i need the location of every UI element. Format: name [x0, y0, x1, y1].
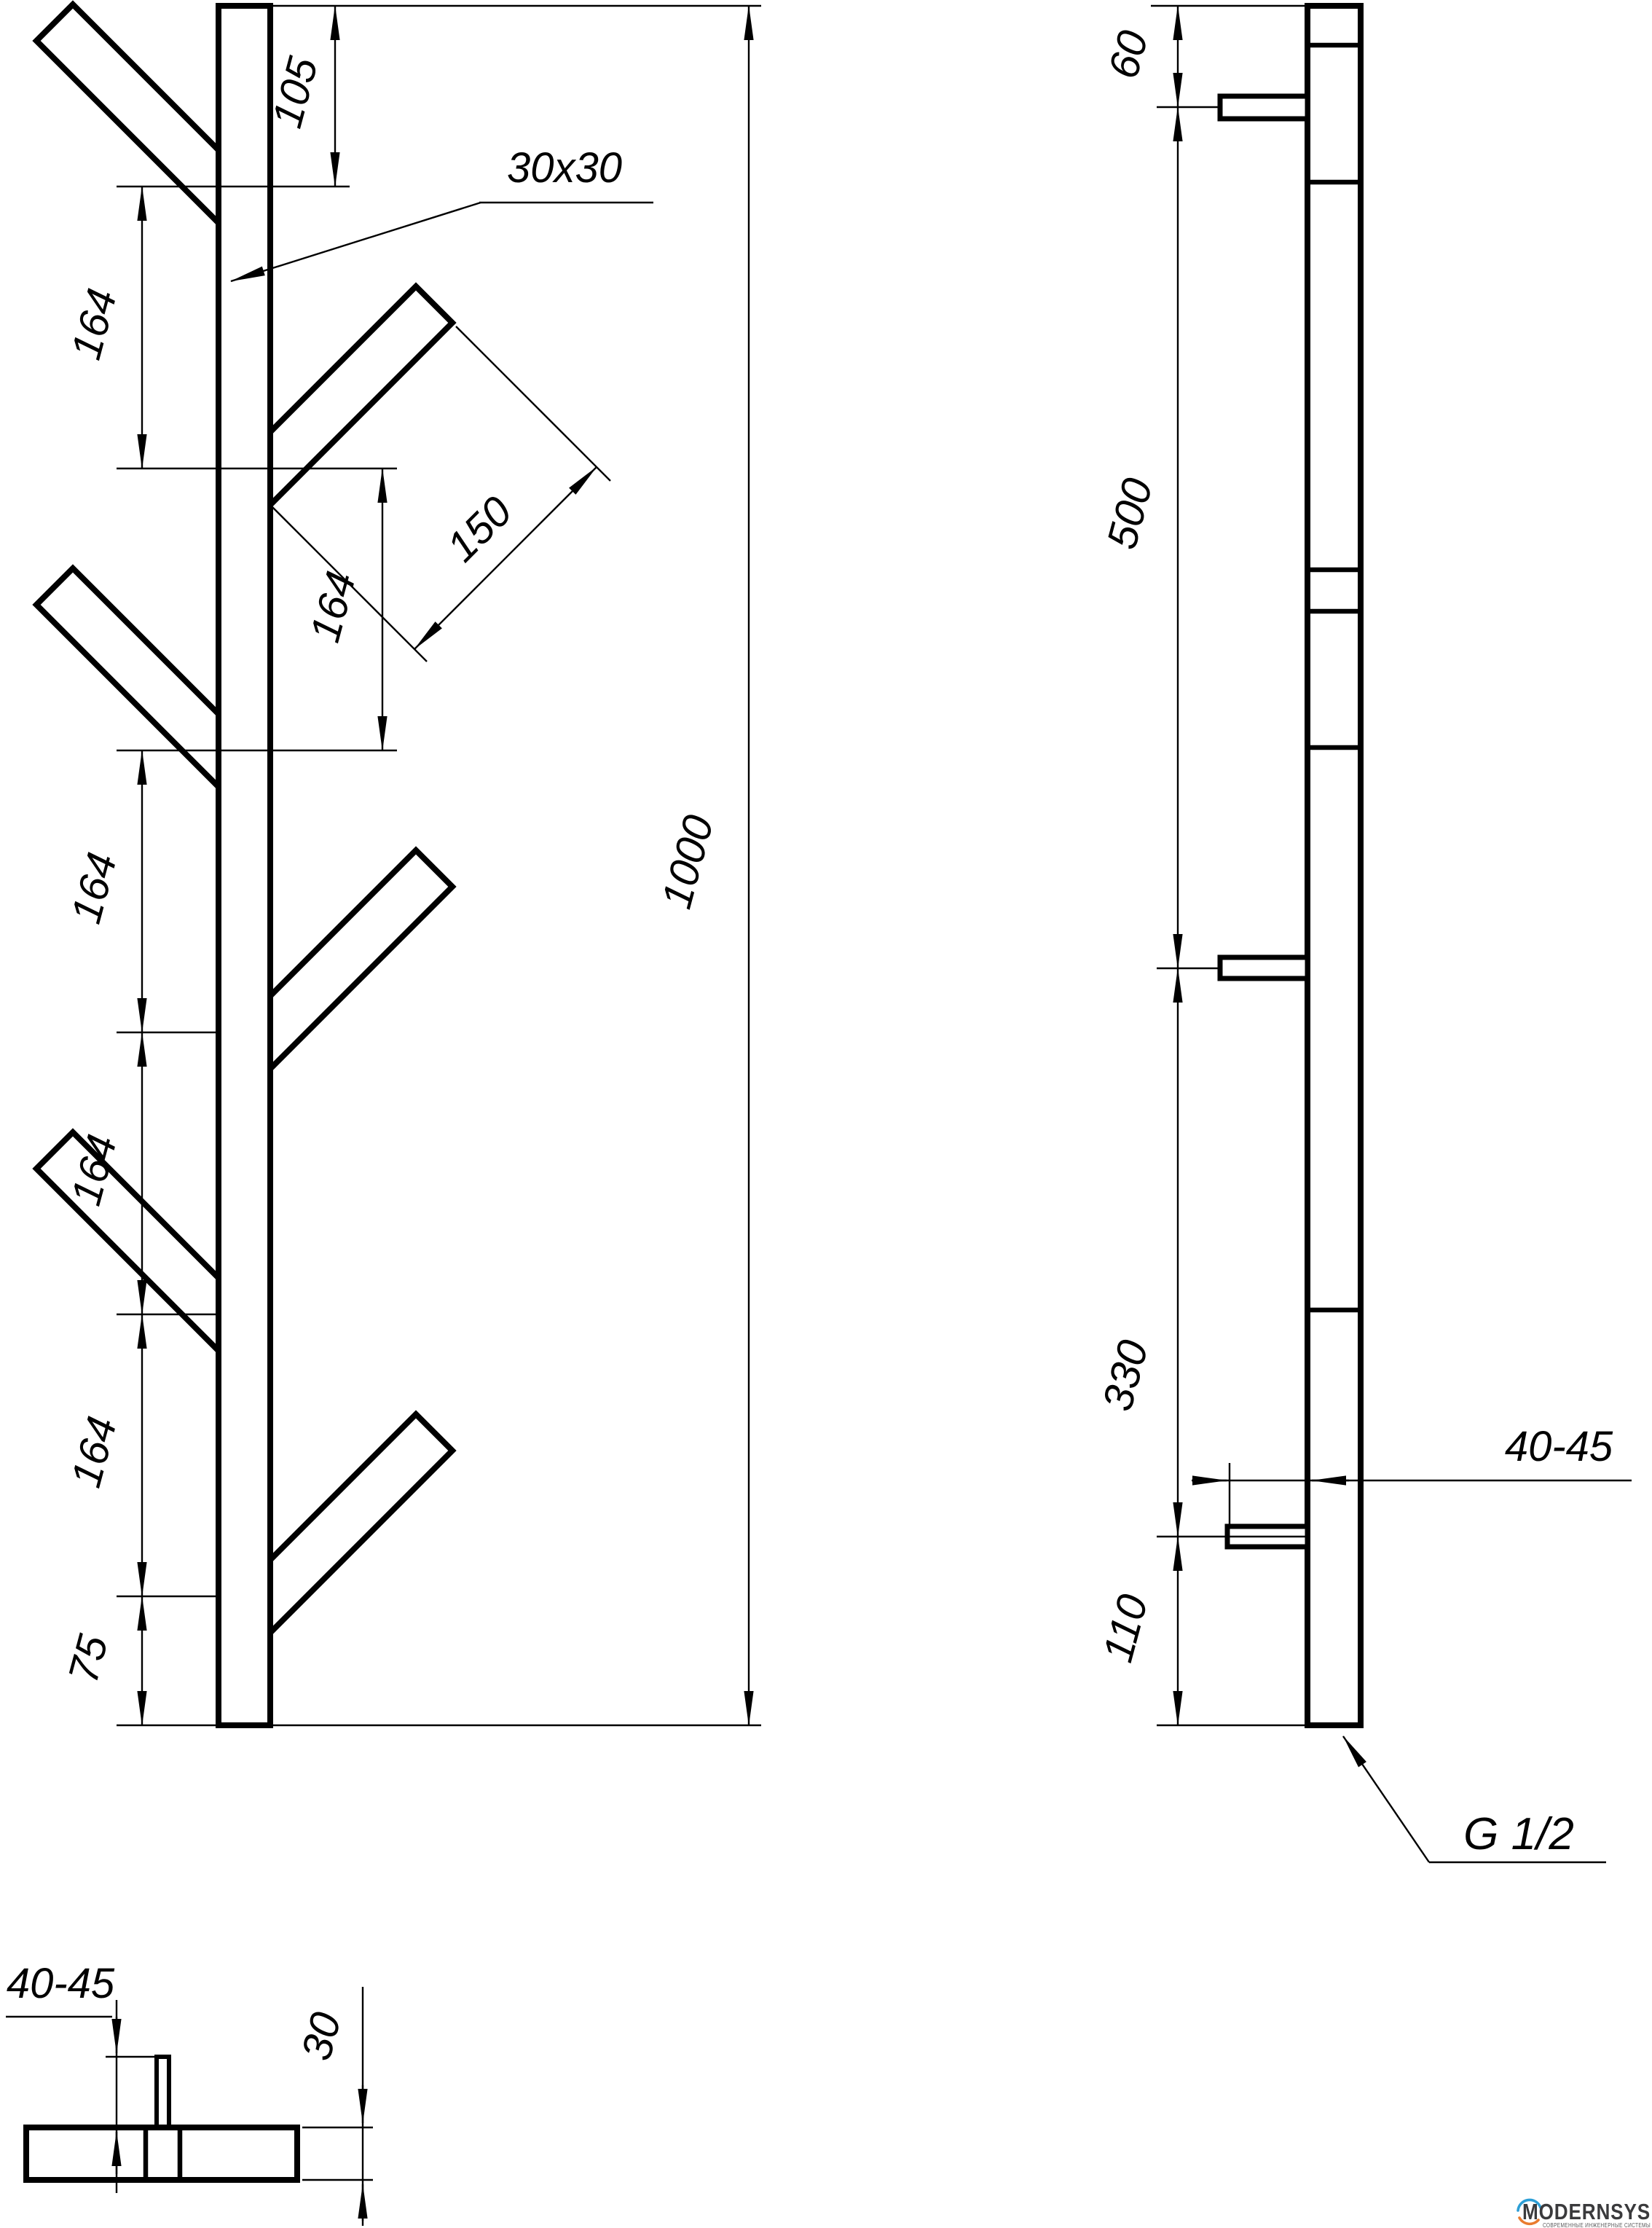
- dim-top-40-45: 40-45: [7, 1960, 115, 2007]
- technical-drawing-canvas: 105 164 164 164 164 164 75 1000 150 30x3…: [0, 0, 1652, 2228]
- hook-branch-right: [270, 850, 452, 1069]
- dim-164-2: 164: [301, 567, 365, 647]
- logo: MODERNSYS СОВРЕМЕННЫЕ ИНЖЕНЕРНЫЕ СИСТЕМЫ: [1518, 2199, 1651, 2228]
- rail-bar-front: [219, 6, 270, 1725]
- label-thread-g12: G 1/2: [1463, 1809, 1574, 1859]
- dim-110: 110: [1094, 1590, 1157, 1667]
- rail-bar-top: [26, 2127, 297, 2180]
- dim-75: 75: [59, 1630, 117, 1688]
- dim-500: 500: [1098, 474, 1162, 554]
- drawing-sheet: 105 164 164 164 164 164 75 1000 150 30x3…: [0, 0, 1652, 2228]
- logo-tagline: СОВРЕМЕННЫЕ ИНЖЕНЕРНЫЕ СИСТЕМЫ: [1543, 2222, 1651, 2228]
- front-view: 105 164 164 164 164 164 75 1000 150 30x3…: [36, 4, 761, 1725]
- top-view: 40-45 30: [6, 1960, 373, 2226]
- rail-bar-side: [1307, 6, 1361, 1725]
- side-view: 60 500 330 110 40-45 G 1/2: [1093, 6, 1632, 1862]
- dimension-line-150: [414, 467, 597, 649]
- hook-branch-left: [36, 568, 219, 787]
- wall-bracket-top: [1220, 96, 1307, 119]
- dim-bracket-40-45: 40-45: [1505, 1423, 1613, 1470]
- wall-bracket-middle: [1220, 957, 1307, 978]
- dim-164-3: 164: [62, 848, 126, 928]
- hook-branch-right: [270, 286, 452, 505]
- dim-depth-30: 30: [292, 2007, 350, 2065]
- hook-branch-right: [270, 1414, 452, 1633]
- label-profile-30x30: 30x30: [507, 144, 622, 192]
- dim-60: 60: [1099, 26, 1157, 83]
- dim-total-1000: 1000: [653, 810, 723, 913]
- dim-164-1: 164: [62, 284, 126, 364]
- hook-branch-left: [36, 1132, 219, 1351]
- dim-150: 150: [438, 487, 521, 570]
- leader-line: [1343, 1736, 1429, 1862]
- dim-330: 330: [1093, 1335, 1157, 1416]
- bracket-stub: [157, 2057, 169, 2127]
- hook-branch-left: [36, 4, 219, 223]
- extension-line: [456, 326, 610, 481]
- dim-164-5: 164: [62, 1412, 126, 1492]
- logo-name: MODERNSYS: [1522, 2199, 1651, 2224]
